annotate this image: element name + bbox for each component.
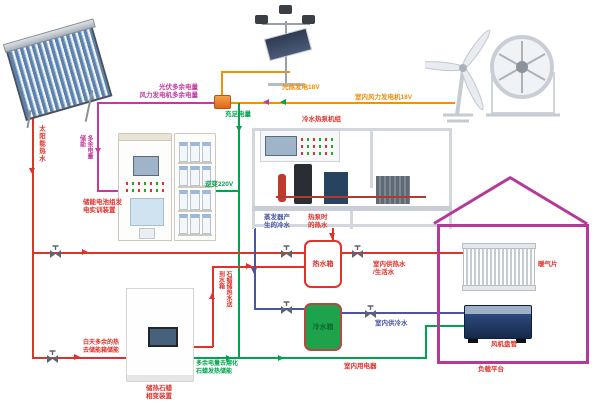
bench-post <box>449 128 452 208</box>
paraffin-screen <box>148 327 178 347</box>
evaporator-coil <box>324 172 348 204</box>
bottom-wire-arrow-2 <box>278 355 284 361</box>
excess-wire-horizontal <box>98 102 215 104</box>
valve-icon <box>280 300 293 316</box>
cabinet-vent <box>139 228 155 239</box>
indoor-hot-line2: /生活水 <box>373 269 406 277</box>
indicator-lights <box>126 189 166 192</box>
sufficient-wire-trunk <box>238 103 240 358</box>
excess-pv-line: 光伏多余电量 <box>128 84 198 92</box>
cabinet-top <box>119 134 171 141</box>
paraffin-return-label: 石蜡储热水送到水箱 <box>216 271 231 311</box>
indoor-hot-line1: 室内供热水 <box>373 261 406 269</box>
battery-cell <box>202 190 211 210</box>
cold-tank-inlet-pipe <box>254 308 304 310</box>
bench-post <box>370 128 373 188</box>
battery-cell <box>202 142 211 162</box>
excess-flow-arrow <box>263 99 269 105</box>
day-excess-line2: 去储能箱储能 <box>83 348 119 356</box>
battery-cell <box>179 166 188 186</box>
day-excess-line1: 白天多余的热 <box>83 340 119 348</box>
battery-cell <box>202 214 211 234</box>
radiator-label: 暖气片 <box>538 261 558 269</box>
valve-icon <box>49 244 62 260</box>
fancoil-label: 风机盘管 <box>491 341 517 349</box>
excess-wind-line: 风力发电机多余电量 <box>128 92 198 100</box>
paraffin-return-riser <box>212 266 214 347</box>
wind-tunnel-fan <box>478 25 566 120</box>
hot-supply-arrow <box>82 249 88 255</box>
battery-cell <box>179 190 188 210</box>
wind-output-label: 室内风力发电机18V <box>355 94 412 102</box>
battery-cell <box>190 166 199 186</box>
excess-storage-label: 多余电量储能 <box>77 135 92 163</box>
hp-label-line2: 的热水 <box>308 222 328 230</box>
heatpump-hot-arrow <box>329 233 335 239</box>
evap-label-line2: 生的冷水 <box>264 222 290 230</box>
paraffin-riser-arrow <box>209 293 215 299</box>
battery-label-line2: 电实训装置 <box>83 207 122 215</box>
fan-coil-feet <box>468 339 478 343</box>
lamp-icon <box>255 15 268 24</box>
house-power-riser <box>425 326 427 359</box>
radiator-rail <box>462 243 536 249</box>
heatpump-screen <box>265 136 297 156</box>
inverter-wire <box>216 190 240 192</box>
charge-junction-box <box>214 95 231 109</box>
day-heat-arrow <box>74 354 80 360</box>
solar-collector <box>6 24 106 128</box>
chiller-label: 冷水热泵机组 <box>302 116 341 124</box>
bench-post <box>252 128 255 208</box>
paraffin-label-line2: 相变装置 <box>146 393 172 401</box>
hp-label-line1: 热泵时 <box>308 214 328 222</box>
cabinet-screen <box>133 156 159 176</box>
system-diagram: 热水箱 冷水箱 太阳能热水 光热发电18V 室内风力发电机18V 光伏多余电量 … <box>0 0 600 419</box>
valve-icon <box>364 304 377 320</box>
fan-coil-unit <box>464 305 532 339</box>
battery-cell <box>190 142 199 162</box>
battery-cell <box>179 214 188 234</box>
melt-label-line1: 多余电量去熔化 <box>196 361 238 369</box>
control-cabinet <box>118 133 172 241</box>
cabinet-heater-unit <box>130 198 164 226</box>
indoor-hot-label: 室内供热水 /生活水 <box>373 261 406 276</box>
solar-hot-pipe-vertical <box>32 116 34 359</box>
cold-water-tank-label: 冷水箱 <box>313 322 334 332</box>
heatpump-buttons <box>301 145 334 148</box>
trunk-down-arrow <box>236 126 242 132</box>
hot-supply-pipe <box>32 252 304 254</box>
paraffin-outlet-pipe <box>193 346 213 348</box>
hot-water-tank-label: 热水箱 <box>313 259 334 269</box>
battery-shelf <box>178 142 212 164</box>
inverter-label: 逆变220V <box>205 181 233 189</box>
melt-paraffin-label: 多余电量去熔化 石蜡发热储能 <box>196 361 238 376</box>
heatpump-hot-label: 热泵时 的热水 <box>308 214 328 229</box>
load-platform-label: 负载平台 <box>478 366 504 374</box>
evap-label-line1: 蒸发器产 <box>264 214 290 222</box>
indoor-cold-label: 室内供冷水 <box>375 320 408 328</box>
solar-pipe-arrow <box>29 168 35 174</box>
lamp-icon <box>279 5 292 14</box>
radiator <box>463 243 535 291</box>
pv-panel <box>264 28 312 62</box>
valve-icon <box>280 244 293 260</box>
paraffin-device-label: 储热石蜡 相变装置 <box>146 385 172 400</box>
sufficient-flow-arrow <box>280 99 286 105</box>
paraffin-to-tank-pipe <box>212 266 304 268</box>
pv-output-label: 光热发电18V <box>282 84 320 92</box>
sufficient-power-label: 充足电量 <box>225 111 251 119</box>
battery-label-line1: 储能电池组发 <box>83 199 122 207</box>
heatpump-buttons <box>301 152 334 155</box>
condenser-unit <box>376 176 410 204</box>
valve-icon <box>46 349 59 365</box>
solar-hot-water-label: 太阳能热水 <box>37 125 45 173</box>
melt-label-line2: 石蜡发热储能 <box>196 369 238 377</box>
battery-shelf <box>178 190 212 212</box>
indoor-appliances-label: 室内用电器 <box>344 363 377 371</box>
heatpump-control-panel <box>260 130 340 162</box>
bench-piping <box>276 196 426 198</box>
indicator-lights <box>126 182 166 185</box>
hot-water-tank: 热水箱 <box>304 240 342 288</box>
solar-collector-tubes <box>6 25 113 121</box>
house-roof-right <box>509 176 588 225</box>
battery-cell <box>190 214 199 234</box>
solar-collector-manifold <box>3 18 96 53</box>
paraffin-label-line1: 储热石蜡 <box>146 385 172 393</box>
battery-cell <box>179 142 188 162</box>
valve-icon <box>351 244 364 260</box>
paraffin-storage-device <box>126 288 194 382</box>
radiator-rail <box>462 285 536 291</box>
evaporator-cold-label: 蒸发器产 生的冷水 <box>264 214 290 229</box>
lamp-icon <box>302 15 315 24</box>
cold-water-tank: 冷水箱 <box>304 303 342 351</box>
heatpump-buttons <box>301 138 334 141</box>
battery-shelf <box>178 214 212 236</box>
evaporator-cold-arrow <box>251 268 257 274</box>
pv-tracker <box>252 5 322 90</box>
excess-power-label: 光伏多余电量 风力发电机多余电量 <box>128 84 198 99</box>
battery-cell <box>190 190 199 210</box>
fan-coil-feet <box>516 339 526 343</box>
excess-down-arrow <box>95 148 101 154</box>
day-excess-heat-label: 白天多余的热 去储能箱储能 <box>83 340 119 355</box>
compressor-unit <box>294 164 312 204</box>
battery-device-label: 储能电池组发 电实训装置 <box>83 199 122 214</box>
